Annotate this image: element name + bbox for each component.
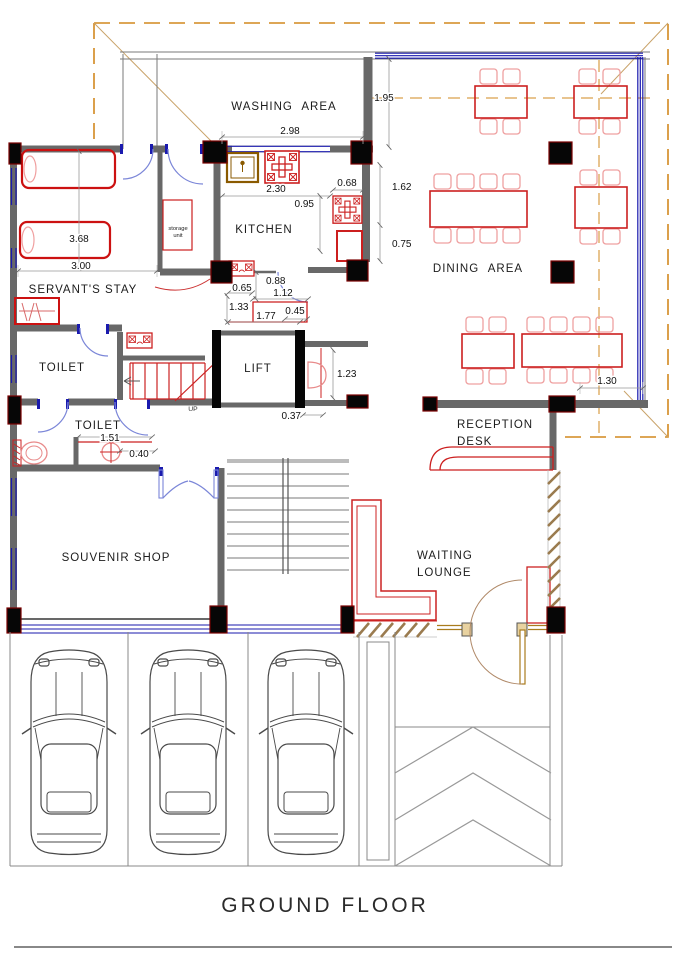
dim-lift-lobby: 1.23 bbox=[337, 369, 357, 380]
main-staircase bbox=[227, 458, 349, 574]
dim-dining-column: 1.30 bbox=[597, 376, 617, 387]
vanity-sink-icon bbox=[127, 333, 152, 348]
parking-lot bbox=[10, 632, 562, 866]
room-label-toilet-upper: TOILET bbox=[39, 362, 85, 374]
dim-kitchen-counter: 2.30 bbox=[266, 184, 286, 195]
dim-servants-width: 3.00 bbox=[71, 261, 91, 272]
reception-desk-shape bbox=[430, 447, 553, 470]
dining-table bbox=[475, 69, 527, 134]
dim-kitchen-side-upper: 1.62 bbox=[392, 182, 412, 193]
interior-staircase bbox=[130, 360, 218, 401]
room-label-waiting: WAITING bbox=[417, 550, 473, 562]
dim-pantry-f: 0.45 bbox=[285, 306, 305, 317]
wardrobe bbox=[15, 298, 59, 324]
lift-lobby-basin bbox=[308, 348, 326, 398]
car bbox=[141, 650, 235, 855]
floor-plan-page: 2.98 1.95 1.62 0.75 2.30 0.68 0.95 3.68 … bbox=[0, 0, 685, 971]
dim-pantry-c: 1.12 bbox=[273, 288, 293, 299]
dining-tables bbox=[430, 69, 627, 384]
dim-lift-wall: 0.37 bbox=[282, 411, 302, 422]
dim-dining-top: 1.95 bbox=[374, 93, 394, 104]
dining-table-long bbox=[522, 317, 622, 383]
room-label-lift: LIFT bbox=[244, 363, 272, 375]
room-label-souvenir-shop: SOUVENIR SHOP bbox=[62, 552, 171, 564]
dining-table bbox=[574, 69, 627, 134]
dimension-lines bbox=[18, 59, 643, 451]
room-label-desk: DESK bbox=[457, 436, 492, 448]
stove-icon bbox=[265, 151, 299, 183]
room-label-washing-area: WASHING AREA bbox=[231, 101, 336, 113]
stove-2-icon bbox=[333, 196, 362, 223]
beds bbox=[20, 150, 115, 258]
dim-servants-length: 3.68 bbox=[69, 234, 89, 245]
room-label-servants-stay: SERVANT'S STAY bbox=[29, 284, 138, 296]
kitchen-sink bbox=[227, 153, 258, 182]
room-label-reception: RECEPTION bbox=[457, 419, 533, 431]
dim-kitchen-side-lower: 0.75 bbox=[392, 239, 412, 250]
door-jambs bbox=[37, 144, 219, 476]
stair-up-arrow bbox=[124, 377, 140, 385]
floor-title: GROUND FLOOR bbox=[221, 894, 429, 917]
dining-table bbox=[575, 170, 627, 244]
room-label-dining-area: DINING AREA bbox=[433, 263, 523, 275]
dim-toilet-width: 1.51 bbox=[100, 433, 120, 444]
dim-pantry-e: 1.77 bbox=[256, 311, 276, 322]
room-label-toilet-lower: TOILET bbox=[75, 420, 121, 432]
up-label: UP bbox=[188, 406, 198, 413]
dim-kitchen-gap: 0.68 bbox=[337, 178, 357, 189]
dim-pantry-d: 1.33 bbox=[229, 302, 249, 313]
dining-table-long bbox=[430, 174, 527, 243]
wall-sink-icon bbox=[229, 261, 254, 276]
car bbox=[259, 650, 353, 855]
room-label-lounge: LOUNGE bbox=[417, 567, 472, 579]
dim-washing-window: 2.98 bbox=[280, 126, 300, 137]
entrance-door bbox=[437, 580, 548, 684]
dim-kitchen-depth: 0.95 bbox=[295, 199, 315, 210]
room-label-kitchen: KITCHEN bbox=[235, 224, 292, 236]
dim-basin-offset: 0.40 bbox=[129, 449, 149, 460]
dining-table bbox=[462, 317, 514, 384]
car bbox=[22, 650, 116, 855]
dim-pantry-b: 0.88 bbox=[266, 276, 286, 287]
wc-fixture bbox=[13, 440, 47, 466]
dim-pantry-a: 0.65 bbox=[232, 283, 252, 294]
storage-box bbox=[155, 200, 210, 290]
storage-label-1: storage bbox=[168, 226, 187, 232]
floor-plan-drawing: 2.98 1.95 1.62 0.75 2.30 0.68 0.95 3.68 … bbox=[0, 0, 685, 971]
ramp-chevrons bbox=[395, 727, 551, 866]
storage-label-2: unit bbox=[173, 233, 183, 239]
kitchen-counter bbox=[337, 231, 362, 261]
